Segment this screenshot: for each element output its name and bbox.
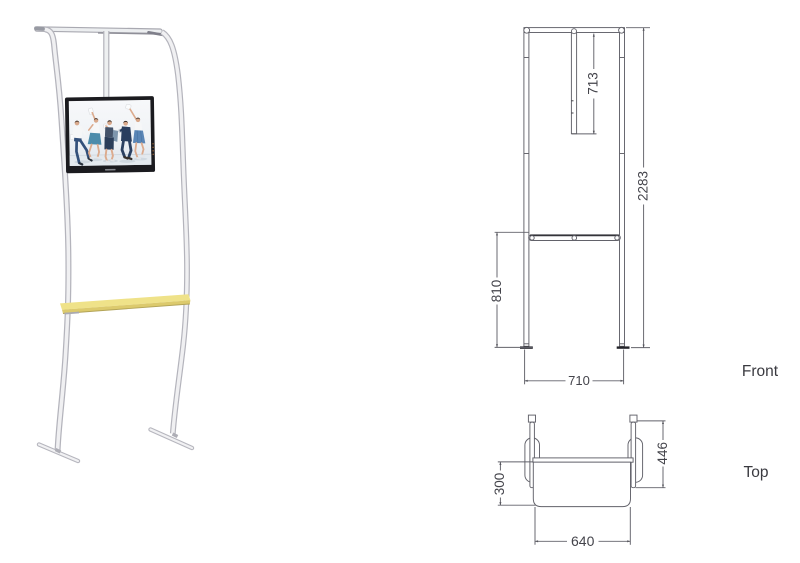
svg-text:2283: 2283	[636, 171, 651, 201]
svg-text:810: 810	[489, 280, 504, 303]
svg-text:640: 640	[571, 533, 595, 549]
svg-text:446: 446	[655, 442, 670, 465]
svg-text:710: 710	[568, 373, 590, 388]
svg-text:713: 713	[586, 72, 601, 95]
svg-text:300: 300	[492, 473, 507, 496]
svg-text:Front: Front	[742, 363, 779, 380]
svg-text:Top: Top	[744, 464, 769, 481]
